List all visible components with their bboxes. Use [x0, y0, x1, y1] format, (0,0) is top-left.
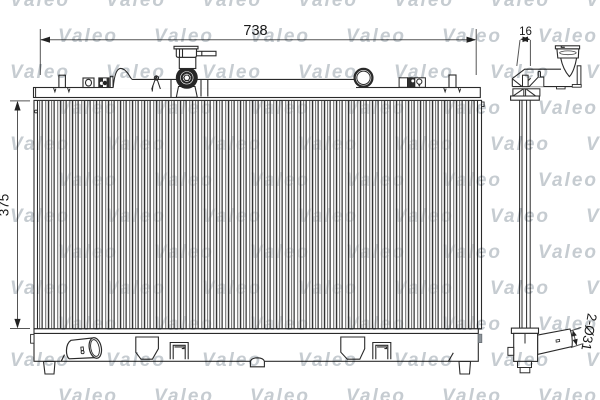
svg-text:16: 16 — [519, 26, 532, 38]
svg-text:Valeo: Valeo — [10, 0, 70, 11]
svg-text:Valeo: Valeo — [106, 350, 166, 371]
svg-text:Valeo: Valeo — [538, 98, 598, 119]
svg-text:Valeo: Valeo — [490, 278, 550, 299]
svg-text:Valeo: Valeo — [490, 134, 550, 155]
svg-text:Valeo: Valeo — [490, 206, 550, 227]
svg-text:Valeo: Valeo — [250, 26, 310, 47]
svg-text:Valeo: Valeo — [586, 0, 600, 11]
svg-text:Valeo: Valeo — [10, 350, 70, 371]
svg-text:Valeo: Valeo — [10, 62, 70, 83]
svg-text:Valeo: Valeo — [586, 134, 600, 155]
svg-text:Valeo: Valeo — [538, 26, 598, 47]
svg-text:Valeo: Valeo — [106, 0, 166, 11]
svg-text:Valeo: Valeo — [490, 350, 550, 371]
svg-text:Valeo: Valeo — [154, 386, 214, 400]
svg-text:Valeo: Valeo — [154, 26, 214, 47]
svg-text:Valeo: Valeo — [346, 26, 406, 47]
svg-text:Valeo: Valeo — [490, 62, 550, 83]
svg-text:Valeo: Valeo — [586, 350, 600, 371]
svg-text:Valeo: Valeo — [202, 0, 262, 11]
svg-text:Valeo: Valeo — [346, 386, 406, 400]
svg-text:Valeo: Valeo — [58, 386, 118, 400]
svg-text:Valeo: Valeo — [538, 242, 598, 263]
svg-text:Valeo: Valeo — [298, 62, 358, 83]
svg-text:Valeo: Valeo — [586, 62, 600, 83]
svg-text:Valeo: Valeo — [250, 386, 310, 400]
svg-text:Valeo: Valeo — [538, 314, 598, 335]
svg-text:Valeo: Valeo — [298, 350, 358, 371]
svg-text:Valeo: Valeo — [394, 350, 454, 371]
svg-text:Valeo: Valeo — [538, 170, 598, 191]
svg-text:Valeo: Valeo — [442, 386, 502, 400]
svg-text:Valeo: Valeo — [394, 0, 454, 11]
svg-text:Valeo: Valeo — [202, 62, 262, 83]
svg-text:Valeo: Valeo — [442, 26, 502, 47]
svg-text:Valeo: Valeo — [538, 386, 598, 400]
svg-text:Valeo: Valeo — [106, 62, 166, 83]
svg-text:Valeo: Valeo — [490, 0, 550, 11]
svg-text:Valeo: Valeo — [394, 62, 454, 83]
svg-text:Valeo: Valeo — [202, 350, 262, 371]
svg-text:Valeo: Valeo — [58, 26, 118, 47]
svg-text:Valeo: Valeo — [586, 278, 600, 299]
svg-text:Valeo: Valeo — [298, 0, 358, 11]
svg-text:Valeo: Valeo — [586, 206, 600, 227]
